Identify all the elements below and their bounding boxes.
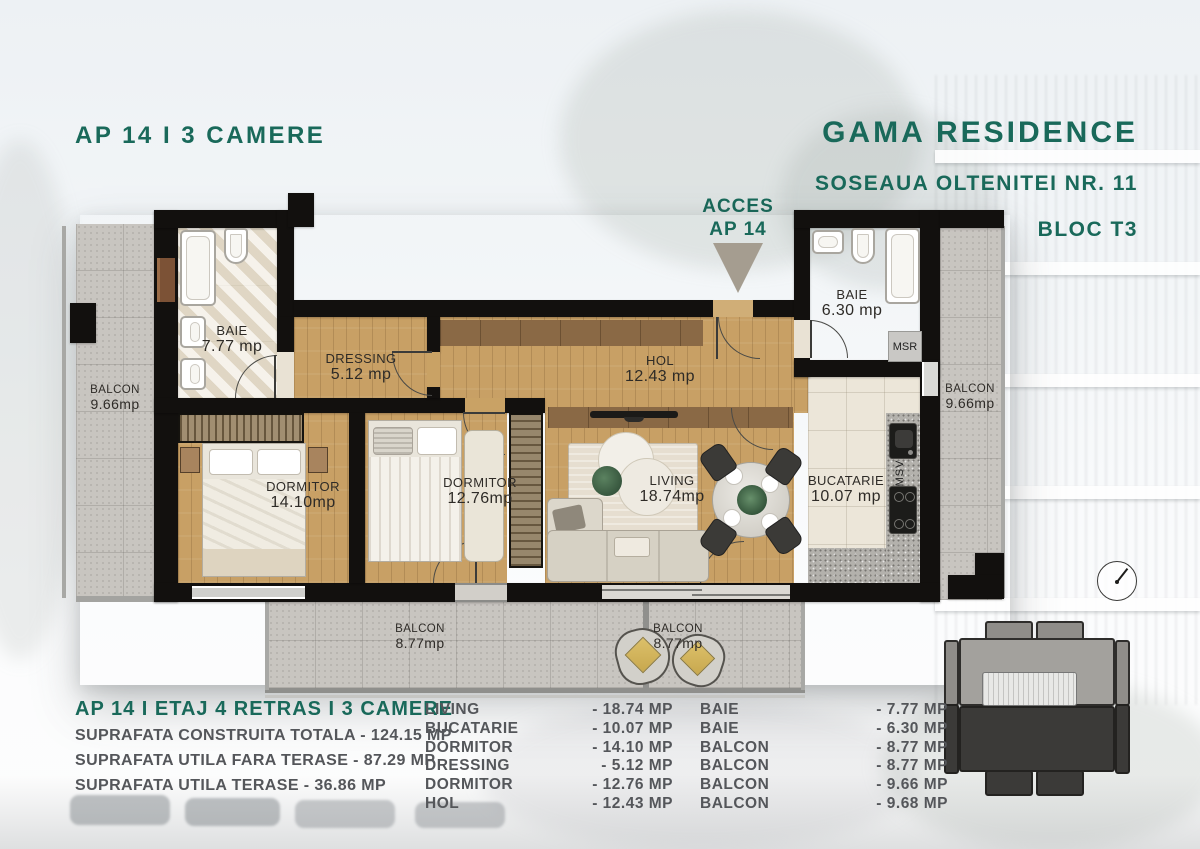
table-row: BALCON- 9.68 MP xyxy=(700,794,948,813)
room-label-baie-1: BAIE 7.77 mp xyxy=(196,324,268,356)
room-label-balcon-bottom-left: BALCON 8.77mp xyxy=(370,623,470,651)
door-leaf-bedroom2 xyxy=(463,412,505,414)
balcony-right-floor xyxy=(940,228,1002,600)
toilet-icon xyxy=(224,228,248,264)
bathtub-icon xyxy=(180,230,216,306)
bg-tree-left xyxy=(0,140,80,660)
room-label-baie-2: BAIE 6.30 mp xyxy=(812,288,892,320)
sofa-graphic xyxy=(942,618,1132,798)
sofa-seat xyxy=(547,530,709,582)
wall-recess-bottom-1 xyxy=(294,300,713,317)
room-label-balcon-bottom-right: BALCON 8.77mp xyxy=(628,623,728,651)
table-row: LIVING- 18.74 MP xyxy=(425,701,673,720)
window-bedroom1 xyxy=(192,586,305,599)
summary-line-3: SUPRAFATA UTILA TERASE - 36.86 MP xyxy=(75,777,386,795)
room-label-dormitor-1: DORMITOR 14.10mp xyxy=(248,480,358,512)
msr-label: MSR xyxy=(893,341,917,353)
summary-line-2: SUPRAFATA UTILA FARA TERASE - 87.29 MP xyxy=(75,752,435,770)
sink-icon xyxy=(180,358,206,390)
table-row: BUCATARIE- 10.07 MP xyxy=(425,720,673,739)
balcony-b2-right-edge xyxy=(801,602,805,690)
balcony-left-bottom-edge xyxy=(76,596,154,602)
window-left-wall xyxy=(157,258,175,302)
wall-dressing-right-1 xyxy=(427,317,440,352)
door-leaf-bathroom1 xyxy=(274,355,276,398)
room-label-balcon-right: BALCON 9.66mp xyxy=(935,383,1005,411)
room-label-balcon-left: BALCON 9.66mp xyxy=(76,384,154,412)
wall-mid-1 xyxy=(154,398,465,413)
room-label-dormitor-2: DORMITOR 12.76mp xyxy=(424,476,536,508)
room-label-bucatarie: BUCATARIE 10.07 mp xyxy=(800,474,892,506)
door-living-sliding-line1 xyxy=(602,589,702,591)
table-row: BALCON- 8.77 MP xyxy=(700,757,948,776)
wall-bathroom2-bottom xyxy=(794,360,940,377)
tv-stand xyxy=(624,417,644,422)
room-label-dressing: DRESSING 5.12 mp xyxy=(300,352,422,384)
hall-closet xyxy=(440,320,703,346)
opening-bedroom2 xyxy=(465,398,505,413)
compass-icon xyxy=(1097,561,1137,601)
floorplan-page: AP 14 I 3 CAMERE GAMA RESIDENCE SOSEAUA … xyxy=(0,0,1200,849)
bg-car xyxy=(295,800,395,828)
apartment-title: AP 14 I 3 CAMERE xyxy=(75,122,325,150)
wall-mid-2 xyxy=(505,398,545,413)
room-label-living: LIVING 18.74mp xyxy=(617,474,727,506)
balcony-b1-left-edge xyxy=(265,602,269,690)
table-row: BALCON- 8.77 MP xyxy=(700,738,948,757)
storage-msr: MSR xyxy=(888,331,922,362)
opening-bathroom1 xyxy=(277,352,294,398)
toilet-icon xyxy=(851,228,875,264)
nightstand-icon xyxy=(180,447,200,473)
wall-step-2 xyxy=(948,575,1004,599)
wall-balcony-right-top xyxy=(940,210,1004,228)
table-row: DORMITOR- 14.10 MP xyxy=(425,738,673,757)
door-bedroom2-balcony xyxy=(455,583,507,602)
sink-icon xyxy=(812,230,844,254)
summary-title: AP 14 I ETAJ 4 RETRAS I 3 CAMERE xyxy=(75,698,453,721)
door-living-sliding xyxy=(602,585,790,599)
balcony-left-rail xyxy=(62,226,66,598)
bg-car xyxy=(70,795,170,825)
kitchen-counter-bottom xyxy=(808,548,886,583)
project-block: BLOC T3 xyxy=(1038,218,1138,242)
wall-balcony-left-block xyxy=(70,303,96,343)
opening-bathroom2 xyxy=(794,320,810,358)
wall-recess-block xyxy=(288,193,314,227)
kitchen-stove-icon xyxy=(889,486,917,534)
plant-icon xyxy=(737,485,767,515)
bedroom1-wardrobe xyxy=(178,413,304,443)
table-row: BAIE- 7.77 MP xyxy=(700,701,948,720)
bg-slab xyxy=(935,150,1200,163)
area-table-right: BAIE- 7.77 MP BAIE- 6.30 MP BALCON- 8.77… xyxy=(700,701,948,813)
table-row: DRESSING- 5.12 MP xyxy=(425,757,673,776)
table-row: DORMITOR- 12.76 MP xyxy=(425,776,673,795)
access-line1: ACCES xyxy=(702,196,774,217)
table-row: BAIE- 6.30 MP xyxy=(700,720,948,739)
table-row: HOL- 12.43 MP xyxy=(425,794,673,813)
bg-car xyxy=(185,798,280,826)
wall-bathroom1-right xyxy=(277,317,294,352)
nightstand-icon xyxy=(308,447,328,473)
door-leaf-entrance xyxy=(716,317,718,359)
table-row: BALCON- 9.66 MP xyxy=(700,776,948,795)
wall-top-b xyxy=(794,210,940,228)
threshold-entrance xyxy=(713,300,753,317)
project-address: SOSEAUA OLTENITEI NR. 11 xyxy=(815,172,1138,196)
area-table-left: LIVING- 18.74 MP BUCATARIE- 10.07 MP DOR… xyxy=(425,701,673,813)
kitchen-sink-icon xyxy=(889,423,917,459)
balcony-right-rail xyxy=(1001,226,1005,598)
door-living-sliding-line2 xyxy=(692,594,790,596)
door-leaf-bathroom2 xyxy=(810,320,812,358)
balcony-bottom-rail xyxy=(265,688,805,693)
wall-top-a xyxy=(154,210,294,228)
room-label-hol: HOL 12.43 mp xyxy=(608,354,712,386)
summary-line-1: SUPRAFATA CONSTRUITA TOTALA - 124.15 MP xyxy=(75,727,452,745)
wall-recess-bottom-2 xyxy=(753,300,794,317)
project-name: GAMA RESIDENCE xyxy=(822,116,1138,150)
msv-label: MSV xyxy=(894,460,906,487)
wall-step-1 xyxy=(975,553,1004,575)
